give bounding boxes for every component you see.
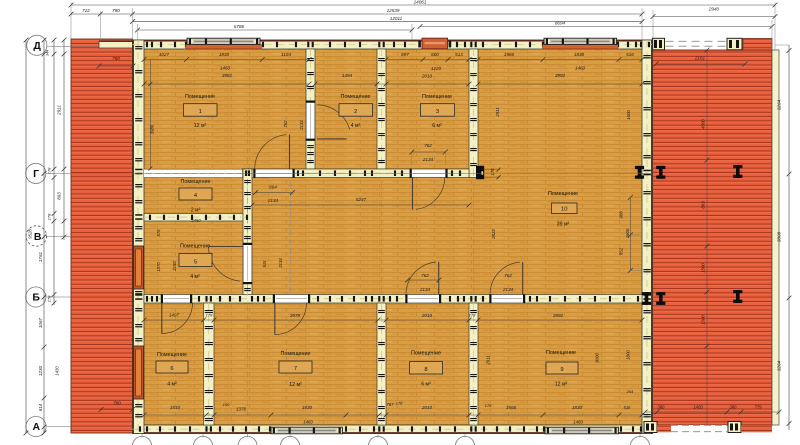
svg-text:178: 178: [396, 401, 403, 406]
svg-text:10: 10: [561, 206, 567, 212]
svg-text:12011: 12011: [390, 16, 403, 21]
svg-text:516: 516: [626, 52, 634, 57]
svg-text:1830: 1830: [574, 52, 585, 57]
svg-text:762: 762: [424, 143, 432, 148]
svg-text:В: В: [34, 231, 42, 243]
svg-text:1400: 1400: [693, 405, 703, 410]
svg-text:12 м²: 12 м²: [194, 123, 207, 129]
svg-text:4 м²: 4 м²: [190, 274, 200, 280]
svg-text:1376: 1376: [236, 407, 247, 412]
svg-text:4500: 4500: [701, 119, 706, 129]
svg-text:6: 6: [170, 366, 173, 372]
svg-text:2161: 2161: [694, 56, 706, 61]
svg-text:1: 1: [199, 109, 202, 115]
svg-text:908: 908: [619, 211, 624, 219]
svg-text:1600: 1600: [625, 228, 630, 238]
svg-text:897: 897: [401, 52, 409, 57]
svg-text:6 м²: 6 м²: [421, 382, 431, 388]
svg-text:1070: 1070: [156, 262, 161, 272]
svg-text:5247: 5247: [356, 197, 367, 202]
svg-text:614: 614: [38, 403, 43, 411]
svg-text:12 м²: 12 м²: [289, 382, 302, 388]
svg-text:2822: 2822: [491, 229, 496, 240]
svg-text:2180: 2180: [172, 261, 177, 272]
svg-text:852: 852: [619, 247, 624, 255]
svg-text:2: 2: [354, 109, 357, 115]
svg-text:1566: 1566: [504, 52, 515, 57]
svg-text:2010: 2010: [421, 313, 433, 318]
svg-text:863: 863: [57, 192, 62, 200]
svg-text:6786: 6786: [234, 24, 245, 29]
svg-text:3: 3: [436, 109, 439, 115]
svg-text:6 м²: 6 м²: [432, 123, 442, 129]
svg-text:Д: Д: [33, 40, 41, 52]
svg-text:3981: 3981: [222, 73, 233, 78]
svg-text:264: 264: [626, 389, 634, 394]
svg-text:9: 9: [560, 367, 563, 373]
svg-text:3992: 3992: [555, 73, 566, 78]
svg-text:722: 722: [82, 8, 90, 13]
svg-text:8: 8: [424, 367, 427, 373]
svg-text:1460: 1460: [575, 66, 586, 71]
svg-text:1430: 1430: [55, 366, 60, 376]
svg-text:344: 344: [46, 50, 50, 56]
svg-text:Помещение: Помещение: [185, 94, 215, 100]
svg-text:178: 178: [490, 168, 495, 176]
svg-text:3808: 3808: [777, 231, 782, 242]
svg-text:1460: 1460: [220, 66, 231, 71]
svg-text:3264: 3264: [777, 99, 782, 110]
svg-text:5: 5: [194, 259, 197, 265]
svg-text:1500: 1500: [701, 315, 706, 325]
svg-text:12 м²: 12 м²: [555, 382, 568, 388]
svg-text:1124: 1124: [281, 52, 291, 57]
svg-text:1566: 1566: [506, 405, 517, 410]
svg-text:2940: 2940: [708, 7, 720, 12]
svg-text:915: 915: [262, 260, 267, 268]
svg-text:1510: 1510: [170, 405, 181, 410]
svg-text:803: 803: [701, 201, 706, 209]
svg-text:1600: 1600: [626, 110, 631, 120]
svg-text:787: 787: [387, 402, 395, 407]
svg-text:513: 513: [455, 52, 463, 57]
svg-text:178: 178: [47, 167, 52, 174]
svg-text:2134: 2134: [278, 258, 283, 269]
svg-text:3986: 3986: [150, 124, 155, 134]
svg-text:2010: 2010: [421, 74, 433, 79]
svg-text:780: 780: [113, 401, 121, 406]
svg-text:178: 178: [47, 295, 52, 302]
svg-text:Помещение: Помещение: [181, 179, 211, 185]
svg-text:Помещение: Помещение: [341, 94, 371, 100]
svg-text:178: 178: [469, 313, 476, 318]
svg-text:762: 762: [421, 273, 429, 278]
svg-text:39 м²: 39 м²: [557, 222, 570, 228]
svg-text:516: 516: [624, 405, 632, 410]
svg-text:2134: 2134: [299, 120, 304, 131]
svg-text:178: 178: [485, 403, 492, 408]
svg-text:Помещение: Помещение: [281, 351, 311, 357]
svg-text:1230: 1230: [38, 365, 43, 376]
svg-text:А: А: [33, 421, 41, 433]
svg-text:1761: 1761: [38, 251, 43, 262]
svg-text:2010: 2010: [421, 405, 433, 410]
svg-text:2911: 2911: [486, 355, 491, 366]
svg-text:2134: 2134: [267, 198, 279, 203]
svg-text:Помещение: Помещение: [548, 191, 578, 197]
svg-text:1800: 1800: [626, 350, 631, 360]
svg-text:380: 380: [658, 405, 666, 410]
svg-text:1027: 1027: [159, 52, 170, 57]
svg-text:2911: 2911: [495, 107, 500, 118]
svg-text:864: 864: [269, 185, 277, 190]
svg-text:150: 150: [223, 402, 230, 407]
svg-text:Г: Г: [33, 168, 39, 180]
svg-text:2134: 2134: [422, 157, 434, 162]
svg-text:Помещение: Помещение: [157, 352, 187, 358]
svg-text:8694: 8694: [555, 21, 566, 26]
svg-text:579: 579: [156, 229, 161, 237]
svg-text:Помещение: Помещение: [546, 350, 576, 356]
svg-text:380: 380: [730, 405, 738, 410]
svg-text:780: 780: [112, 56, 120, 61]
svg-text:1830: 1830: [572, 405, 583, 410]
svg-text:1460: 1460: [573, 420, 583, 425]
svg-text:1830: 1830: [302, 405, 313, 410]
svg-text:2450: 2450: [190, 218, 201, 223]
svg-text:2134: 2134: [419, 287, 431, 292]
svg-text:3978: 3978: [290, 313, 301, 318]
svg-text:178: 178: [47, 213, 52, 220]
svg-text:762: 762: [504, 273, 512, 278]
svg-text:4 м²: 4 м²: [167, 382, 177, 388]
svg-text:780: 780: [112, 8, 120, 13]
svg-text:9528: 9528: [28, 229, 33, 239]
svg-text:4 м²: 4 м²: [351, 123, 361, 129]
svg-text:3264: 3264: [777, 360, 782, 371]
svg-text:2134: 2134: [502, 287, 514, 292]
svg-text:14061: 14061: [414, 0, 427, 4]
svg-text:1500: 1500: [701, 263, 706, 273]
svg-text:1460: 1460: [303, 420, 313, 425]
svg-text:1830: 1830: [219, 52, 230, 57]
svg-text:Помещение: Помещение: [422, 94, 452, 100]
svg-text:Помещение: Помещение: [411, 351, 441, 357]
svg-text:2911: 2911: [57, 105, 62, 116]
svg-text:779: 779: [755, 405, 763, 410]
svg-text:600: 600: [431, 52, 439, 57]
svg-text:12539: 12539: [387, 8, 400, 13]
svg-text:1067: 1067: [38, 317, 43, 328]
svg-text:1497: 1497: [169, 313, 180, 318]
svg-text:178: 178: [206, 313, 213, 318]
svg-text:Б: Б: [32, 292, 40, 304]
svg-text:2 м²: 2 м²: [191, 208, 201, 214]
svg-text:3992: 3992: [553, 313, 564, 318]
svg-text:762: 762: [283, 120, 288, 128]
svg-text:1220: 1220: [431, 66, 442, 71]
svg-text:1494: 1494: [342, 73, 353, 78]
svg-text:Помещение: Помещение: [180, 244, 210, 250]
svg-text:7: 7: [294, 366, 297, 372]
svg-text:3000: 3000: [595, 353, 600, 363]
